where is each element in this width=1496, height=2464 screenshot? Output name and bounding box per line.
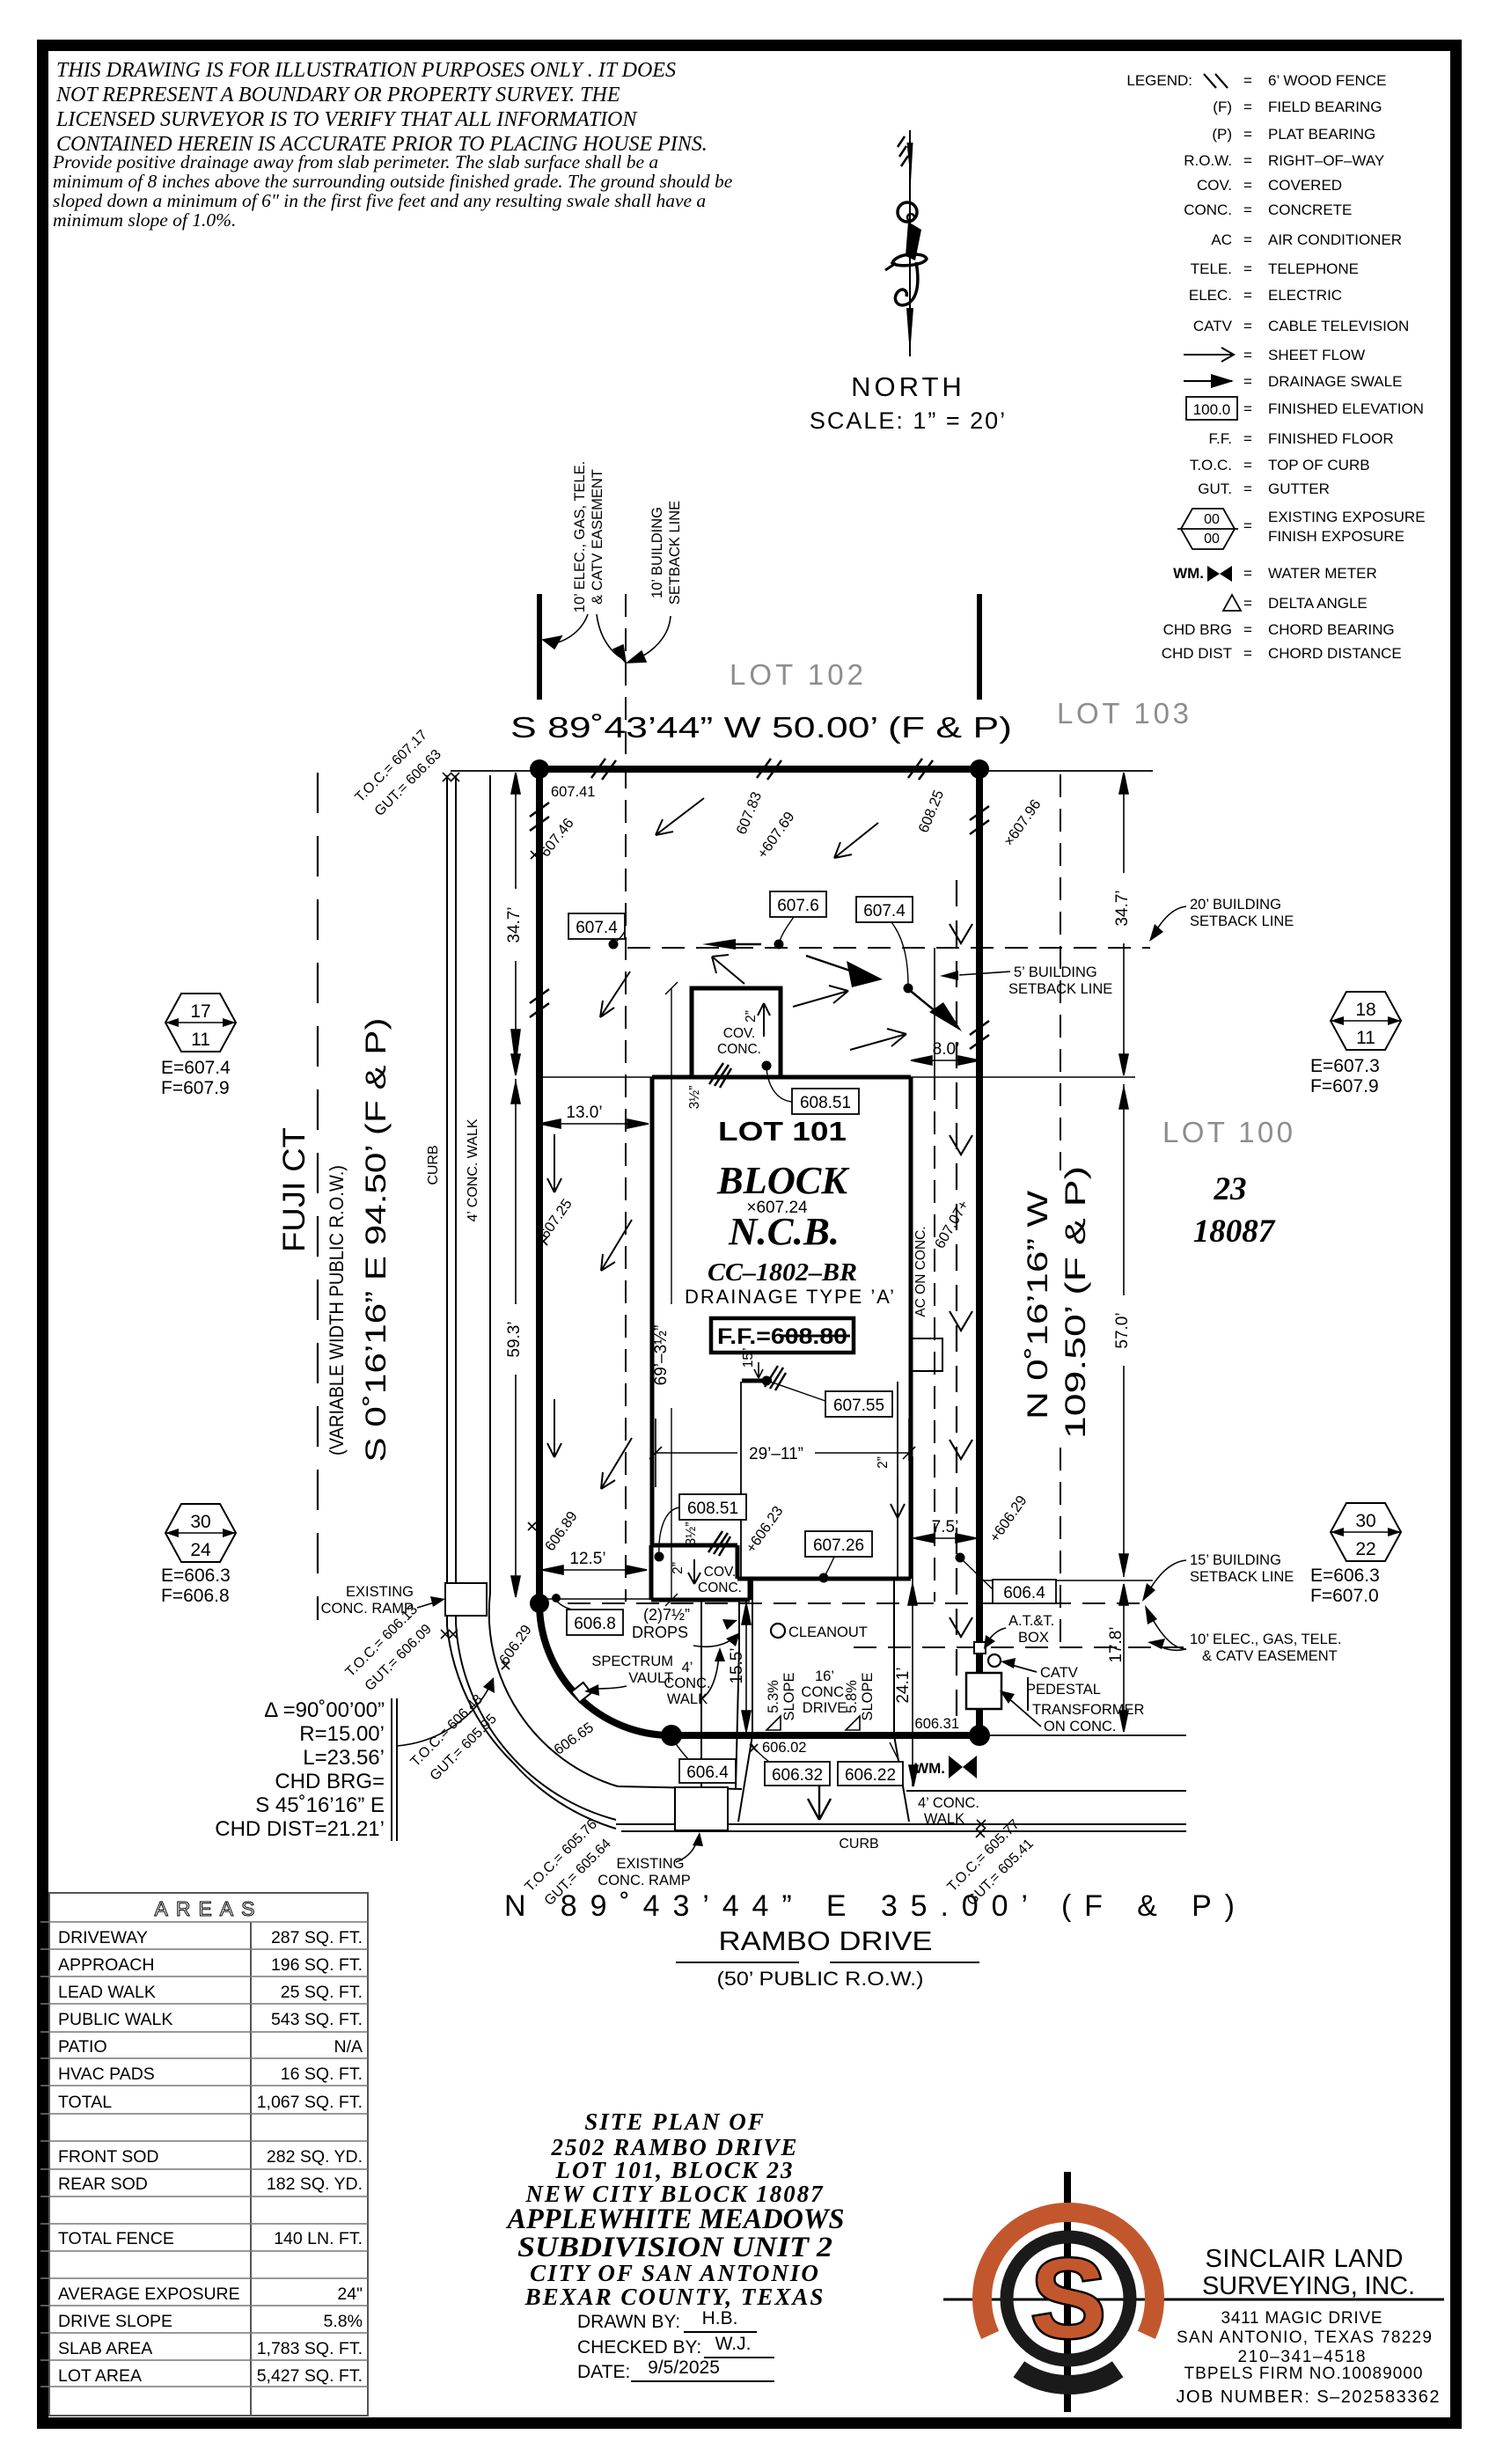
svg-text:18087: 18087 [1193, 1214, 1276, 1250]
svg-text:PATIO: PATIO [58, 2037, 107, 2057]
svg-text:CONC.: CONC. [1184, 202, 1232, 218]
svg-text:4’: 4’ [682, 1660, 693, 1676]
svg-text:PUBLIC WALK: PUBLIC WALK [58, 2010, 172, 2029]
svg-text:AVERAGE EXPOSURE: AVERAGE EXPOSURE [58, 2284, 240, 2304]
svg-text:FINISHED FLOOR: FINISHED FLOOR [1268, 430, 1394, 447]
svg-text:4’ CONC. WALK: 4’ CONC. WALK [466, 1118, 480, 1221]
svg-text:CHD DIST: CHD DIST [1162, 645, 1232, 662]
svg-text:CC–1802–BR: CC–1802–BR [708, 1259, 857, 1287]
svg-text:SETBACK LINE: SETBACK LINE [1008, 981, 1112, 997]
svg-text:00: 00 [1204, 532, 1220, 546]
svg-text:3411 MAGIC DRIVE: 3411 MAGIC DRIVE [1221, 2309, 1382, 2328]
svg-text:=: = [1243, 347, 1252, 363]
svg-text:CITY OF SAN ANTONIO: CITY OF SAN ANTONIO [530, 2260, 820, 2286]
svg-text:607.6: 607.6 [777, 897, 819, 915]
svg-text:SLAB AREA: SLAB AREA [58, 2339, 152, 2358]
svg-text:69’–3½”: 69’–3½” [652, 1325, 671, 1386]
svg-text:FINISHED ELEVATION: FINISHED ELEVATION [1268, 400, 1424, 417]
svg-text:DRIVEWAY: DRIVEWAY [58, 1928, 148, 1947]
svg-text:00: 00 [1204, 512, 1220, 527]
svg-text:=: = [1243, 318, 1252, 334]
svg-text:10’ ELEC., GAS, TELE.: 10’ ELEC., GAS, TELE. [572, 461, 588, 612]
svg-text:5’ BUILDING: 5’ BUILDING [1014, 964, 1097, 980]
svg-text:25 SQ. FT.: 25 SQ. FT. [281, 1983, 363, 2002]
svg-text:Provide positive drainage away: Provide positive drainage away from slab… [52, 151, 658, 172]
svg-text:8.0’: 8.0’ [933, 1040, 960, 1059]
svg-text:606.02: 606.02 [762, 1740, 806, 1756]
svg-text:23: 23 [1214, 1171, 1247, 1207]
svg-text:COV.: COV. [723, 1026, 755, 1041]
svg-text:SITE PLAN OF: SITE PLAN OF [584, 2108, 766, 2135]
svg-text:30: 30 [190, 1512, 210, 1532]
svg-text:15”: 15” [741, 1348, 756, 1368]
svg-text:E=607.3: E=607.3 [1310, 1056, 1380, 1076]
svg-text:FINISH EXPOSURE: FINISH EXPOSURE [1268, 528, 1404, 545]
svg-text:210–341–4518: 210–341–4518 [1238, 2348, 1366, 2366]
svg-text:=: = [1243, 645, 1252, 662]
svg-text:607.26: 607.26 [813, 1536, 864, 1555]
svg-text:=: = [1243, 430, 1252, 447]
svg-text:WALK: WALK [667, 1691, 708, 1707]
svg-text:=: = [1243, 202, 1252, 218]
svg-text:CHD BRG=: CHD BRG= [275, 1770, 385, 1793]
svg-text:LOT 102: LOT 102 [730, 658, 863, 691]
svg-text:CONC. RAMP: CONC. RAMP [598, 1873, 690, 1888]
svg-text:DRIVE SLOPE: DRIVE SLOPE [58, 2312, 172, 2331]
svg-text:2”: 2” [744, 1010, 759, 1023]
svg-text:543 SQ. FT.: 543 SQ. FT. [271, 2010, 363, 2029]
svg-text:minimum of 8 inches above the: minimum of 8 inches above the surroundin… [53, 171, 733, 192]
svg-text:=: = [1243, 231, 1252, 248]
svg-text:TOTAL FENCE: TOTAL FENCE [58, 2229, 174, 2248]
svg-text:607.41: 607.41 [551, 784, 595, 800]
svg-text:TRANSFORMER: TRANSFORMER [1032, 1702, 1145, 1718]
svg-text:5.3%: 5.3% [766, 1680, 781, 1713]
svg-text:F=606.8: F=606.8 [161, 1586, 230, 1606]
svg-text:APPLEWHITE MEADOWS: APPLEWHITE MEADOWS [506, 2204, 845, 2235]
svg-text:10’ BUILDING: 10’ BUILDING [649, 507, 665, 598]
svg-text:=: = [1243, 480, 1252, 497]
svg-text:SETBACK LINE: SETBACK LINE [667, 501, 683, 605]
svg-text:34.7’: 34.7’ [505, 906, 524, 942]
svg-text:CONC. RAMP: CONC. RAMP [321, 1601, 414, 1617]
svg-text:(F): (F) [1213, 99, 1232, 115]
svg-text:607.4: 607.4 [863, 902, 906, 920]
svg-text:& CATV EASEMENT: & CATV EASEMENT [1202, 1648, 1338, 1664]
svg-text:=: = [1243, 177, 1252, 194]
svg-text:RIGHT–OF–WAY: RIGHT–OF–WAY [1268, 152, 1384, 169]
svg-text:NOT REPRESENT A BOUNDARY OR PR: NOT REPRESENT A BOUNDARY OR PROPERTY SUR… [55, 84, 620, 106]
svg-text:11: 11 [1356, 1028, 1375, 1048]
svg-text:EXISTING: EXISTING [346, 1584, 414, 1600]
svg-text:H.B.: H.B. [702, 2308, 738, 2328]
svg-text:=: = [1243, 72, 1252, 89]
svg-text:GUTTER: GUTTER [1268, 480, 1330, 497]
svg-text:24.1’: 24.1’ [894, 1667, 913, 1703]
svg-text:(VARIABLE WIDTH PUBLIC R.O.W.): (VARIABLE WIDTH PUBLIC R.O.W.) [326, 1165, 348, 1456]
svg-text:CATV: CATV [1193, 318, 1233, 334]
svg-text:NORTH: NORTH [851, 371, 965, 402]
svg-text:DRAINAGE TYPE ’A’: DRAINAGE TYPE ’A’ [685, 1286, 894, 1308]
svg-text:SAN ANTONIO, TEXAS 78229: SAN ANTONIO, TEXAS 78229 [1177, 2328, 1432, 2347]
svg-text:=: = [1243, 152, 1252, 169]
svg-text:SINCLAIR LAND: SINCLAIR LAND [1206, 2245, 1404, 2273]
svg-text:TELEPHONE: TELEPHONE [1268, 260, 1359, 277]
svg-text:DROPS: DROPS [632, 1624, 688, 1641]
svg-text:GUT.: GUT. [1198, 480, 1232, 497]
svg-text:SPECTRUM: SPECTRUM [591, 1654, 673, 1669]
svg-text:E=607.4: E=607.4 [161, 1058, 231, 1078]
svg-text:E=606.3: E=606.3 [1310, 1566, 1380, 1586]
svg-text:AIR CONDITIONER: AIR CONDITIONER [1268, 231, 1402, 248]
svg-text:CABLE TELEVISION: CABLE TELEVISION [1268, 318, 1409, 334]
svg-text:T.O.C.: T.O.C. [1190, 457, 1232, 473]
svg-text:AC: AC [1211, 231, 1232, 248]
svg-text:F=607.9: F=607.9 [1310, 1076, 1379, 1096]
svg-text:S: S [1030, 2236, 1105, 2362]
svg-text:15’ BUILDING: 15’ BUILDING [1190, 1552, 1281, 1568]
svg-text:CONC.: CONC. [717, 1042, 761, 1057]
svg-text:15.5’: 15.5’ [728, 1647, 746, 1683]
svg-text:CONCRETE: CONCRETE [1268, 202, 1352, 218]
svg-text:=: = [1243, 517, 1252, 534]
svg-text:TOP OF CURB: TOP OF CURB [1268, 457, 1370, 473]
svg-text:CHORD BEARING: CHORD BEARING [1268, 621, 1395, 638]
svg-text:SCALE: 1” = 20’: SCALE: 1” = 20’ [810, 407, 1007, 434]
svg-text:ELECTRIC: ELECTRIC [1268, 287, 1342, 304]
svg-text:7.5’: 7.5’ [932, 1518, 959, 1536]
svg-text:PLAT BEARING: PLAT BEARING [1268, 126, 1375, 143]
svg-text:3½”: 3½” [684, 1522, 699, 1546]
svg-text:N.C.B.: N.C.B. [728, 1210, 840, 1253]
svg-text:SLOPE: SLOPE [860, 1672, 876, 1720]
svg-text:APPROACH: APPROACH [58, 1955, 154, 1975]
svg-text:=: = [1243, 400, 1252, 417]
svg-text:DRIVE: DRIVE [803, 1700, 847, 1716]
svg-text:109.50’ (F & P): 109.50’ (F & P) [1060, 1166, 1091, 1439]
svg-text:BLOCK: BLOCK [716, 1159, 850, 1202]
svg-text:N/A: N/A [334, 2037, 363, 2057]
svg-text:CURB: CURB [839, 1837, 878, 1852]
svg-text:LEAD WALK: LEAD WALK [58, 1983, 156, 2002]
svg-text:WM.: WM. [914, 1760, 945, 1777]
svg-text:DELTA ANGLE: DELTA ANGLE [1268, 595, 1368, 612]
svg-text:F=607.0: F=607.0 [1310, 1586, 1379, 1606]
svg-text:59.3’: 59.3’ [505, 1321, 524, 1357]
svg-text:(P): (P) [1212, 126, 1232, 143]
svg-text:CURB: CURB [426, 1145, 441, 1184]
svg-text:608.51: 608.51 [800, 1094, 851, 1112]
svg-text:9/5/2025: 9/5/2025 [648, 2358, 720, 2378]
svg-text:BEXAR COUNTY, TEXAS: BEXAR COUNTY, TEXAS [524, 2284, 825, 2310]
svg-text:TELE.: TELE. [1191, 260, 1232, 277]
svg-text:=: = [1243, 595, 1252, 612]
svg-text:22: 22 [1355, 1539, 1375, 1559]
svg-text:=: = [1243, 126, 1252, 143]
svg-text:1,783 SQ. FT.: 1,783 SQ. FT. [257, 2339, 363, 2358]
svg-text:ON CONC.: ON CONC. [1044, 1719, 1117, 1734]
svg-text:F=607.9: F=607.9 [161, 1078, 230, 1098]
svg-text:18: 18 [1355, 1000, 1375, 1020]
svg-text:CONC.: CONC. [801, 1684, 847, 1700]
svg-text:WATER METER: WATER METER [1268, 565, 1377, 582]
svg-text:608.51: 608.51 [687, 1500, 738, 1518]
svg-text:SETBACK LINE: SETBACK LINE [1190, 913, 1294, 929]
svg-text:sloped down a minimum of 6" in: sloped down a minimum of 6" in the first… [53, 190, 706, 211]
svg-text:24: 24 [190, 1540, 211, 1560]
svg-text:3½”: 3½” [687, 1086, 702, 1110]
svg-text:282 SQ. YD.: 282 SQ. YD. [267, 2147, 363, 2167]
svg-text:F.F.: F.F. [1209, 430, 1232, 447]
svg-text:SURVEYING, INC.: SURVEYING, INC. [1202, 2272, 1415, 2300]
svg-text:607.4: 607.4 [576, 919, 618, 937]
svg-text:SHEET FLOW: SHEET FLOW [1268, 347, 1365, 363]
svg-text:606.32: 606.32 [772, 1766, 823, 1785]
svg-text:34.7’: 34.7’ [1113, 890, 1132, 926]
svg-text:EXISTING EXPOSURE: EXISTING EXPOSURE [1268, 509, 1426, 525]
svg-text:TBPELS FIRM NO.10089000: TBPELS FIRM NO.10089000 [1184, 2365, 1423, 2383]
svg-text:DRAWN BY:: DRAWN BY: [577, 2312, 680, 2332]
svg-text:minimum slope of 1.0%.: minimum slope of 1.0%. [53, 209, 236, 231]
svg-text:=: = [1243, 373, 1252, 390]
svg-text:WM.: WM. [1173, 565, 1204, 582]
svg-text:N 0˚16’16” W: N 0˚16’16” W [1022, 1190, 1053, 1419]
svg-text:1,067 SQ. FT.: 1,067 SQ. FT. [257, 2093, 363, 2112]
svg-text:S 89˚43’44” W 50.00’ (F & P): S 89˚43’44” W 50.00’ (F & P) [510, 711, 1012, 744]
svg-text:13.0’: 13.0’ [566, 1104, 602, 1122]
svg-text:2”: 2” [671, 1562, 686, 1574]
svg-text:COV.: COV. [1197, 177, 1232, 194]
svg-text:LOT 103: LOT 103 [1057, 697, 1189, 730]
svg-text:=: = [1243, 565, 1252, 582]
svg-text:606.8: 606.8 [574, 1615, 616, 1633]
svg-text:606.22: 606.22 [845, 1766, 896, 1785]
svg-text:182 SQ. YD.: 182 SQ. YD. [267, 2174, 363, 2194]
svg-text:10’ ELEC., GAS, TELE.: 10’ ELEC., GAS, TELE. [1190, 1632, 1341, 1647]
svg-text:AC ON CONC.: AC ON CONC. [913, 1226, 928, 1316]
svg-text:PEDESTAL: PEDESTAL [1026, 1682, 1101, 1698]
svg-text:AREAS: AREAS [155, 1897, 263, 1920]
svg-text:20’ BUILDING: 20’ BUILDING [1190, 897, 1281, 913]
svg-text:Δ =90˚00’00”: Δ =90˚00’00” [264, 1698, 385, 1722]
svg-text:FRONT SOD: FRONT SOD [58, 2147, 158, 2167]
svg-text:16’: 16’ [815, 1668, 834, 1684]
svg-text:196 SQ. FT.: 196 SQ. FT. [271, 1955, 363, 1975]
svg-text:A.T.&T.: A.T.&T. [1008, 1613, 1054, 1629]
svg-text:L=23.56’: L=23.56’ [303, 1746, 385, 1770]
svg-text:S 0˚16’16” E 94.50’ (F & P): S 0˚16’16” E 94.50’ (F & P) [360, 1018, 392, 1463]
svg-text:CHD DIST=21.21’: CHD DIST=21.21’ [215, 1817, 385, 1841]
svg-text:COV.: COV. [704, 1565, 736, 1580]
svg-text:COVERED: COVERED [1268, 177, 1342, 194]
svg-text:24": 24" [337, 2284, 363, 2304]
svg-text:4’ CONC.: 4’ CONC. [918, 1795, 979, 1811]
svg-text:606.4: 606.4 [1003, 1584, 1045, 1602]
svg-text:FIELD BEARING: FIELD BEARING [1268, 99, 1382, 115]
svg-text:DATE:: DATE: [577, 2362, 630, 2382]
svg-text:30: 30 [1355, 1511, 1375, 1531]
svg-text:DRAINAGE SWALE: DRAINAGE SWALE [1268, 373, 1402, 390]
svg-text:(2)7½”: (2)7½” [643, 1606, 690, 1624]
svg-text:17: 17 [190, 1001, 210, 1022]
svg-text:CHD BRG: CHD BRG [1163, 621, 1232, 638]
svg-text:=: = [1243, 457, 1252, 473]
svg-text:LICENSED SURVEYOR IS TO VERIFY: LICENSED SURVEYOR IS TO VERIFY THAT ALL … [55, 108, 638, 131]
svg-text:287 SQ. FT.: 287 SQ. FT. [271, 1928, 363, 1947]
svg-text:606.4: 606.4 [686, 1764, 729, 1782]
svg-text:LOT 100: LOT 100 [1162, 1116, 1293, 1148]
svg-text:R=15.00’: R=15.00’ [299, 1722, 385, 1746]
svg-text:=: = [1243, 287, 1252, 304]
svg-text:=: = [1243, 99, 1252, 115]
svg-text:12.5’: 12.5’ [569, 1550, 605, 1568]
svg-text:11: 11 [191, 1030, 210, 1050]
svg-text:607.55: 607.55 [833, 1397, 884, 1415]
svg-text:JOB NUMBER: S–202583362: JOB NUMBER: S–202583362 [1177, 2387, 1440, 2407]
svg-text:TOTAL: TOTAL [58, 2093, 112, 2112]
svg-text:SLOPE: SLOPE [781, 1672, 797, 1720]
svg-text:HVAC PADS: HVAC PADS [58, 2064, 155, 2084]
svg-text:=: = [1243, 621, 1252, 638]
svg-text:CONC.: CONC. [664, 1676, 710, 1691]
svg-text:2”: 2” [876, 1456, 891, 1469]
svg-text:CHORD DISTANCE: CHORD DISTANCE [1268, 645, 1402, 662]
svg-text:RAMBO DRIVE: RAMBO DRIVE [719, 1925, 933, 1956]
svg-text:FUJI CT: FUJI CT [277, 1127, 312, 1252]
svg-text:(50’ PUBLIC R.O.W.): (50’ PUBLIC R.O.W.) [717, 1968, 924, 1990]
svg-text:R.O.W.: R.O.W. [1184, 152, 1232, 169]
svg-text:SUBDIVISION UNIT 2: SUBDIVISION UNIT 2 [517, 2232, 832, 2263]
svg-text:100.0: 100.0 [1193, 401, 1231, 418]
svg-text:=: = [1243, 260, 1252, 277]
svg-text:5,427 SQ. FT.: 5,427 SQ. FT. [257, 2366, 363, 2386]
svg-text:CONC.: CONC. [698, 1580, 742, 1595]
svg-text:W.J.: W.J. [715, 2334, 752, 2354]
svg-text:140 LN. FT.: 140 LN. FT. [274, 2229, 363, 2248]
svg-text:LEGEND:: LEGEND: [1126, 72, 1192, 89]
svg-text:SETBACK LINE: SETBACK LINE [1190, 1569, 1294, 1585]
svg-text:57.0’: 57.0’ [1113, 1312, 1132, 1348]
svg-text:S 45˚16’16” E: S 45˚16’16” E [255, 1793, 385, 1817]
svg-text:E=606.3: E=606.3 [161, 1566, 231, 1586]
svg-text:CHECKED BY:: CHECKED BY: [577, 2337, 701, 2358]
svg-text:WALK: WALK [924, 1811, 964, 1827]
svg-text:LOT 101, BLOCK 23: LOT 101, BLOCK 23 [554, 2157, 794, 2183]
svg-text:17.8’: 17.8’ [1107, 1626, 1126, 1662]
svg-text:ELEC.: ELEC. [1189, 287, 1232, 304]
svg-text:CATV: CATV [1040, 1665, 1078, 1681]
svg-text:6’ WOOD FENCE: 6’ WOOD FENCE [1268, 72, 1386, 89]
svg-text:EXISTING: EXISTING [616, 1856, 684, 1872]
svg-text:29’–11”: 29’–11” [749, 1445, 803, 1463]
svg-text:THIS DRAWING IS FOR ILLUSTRATI: THIS DRAWING IS FOR ILLUSTRATION PURPOSE… [56, 59, 676, 82]
svg-text:& CATV EASEMENT: & CATV EASEMENT [590, 469, 605, 605]
svg-text:606.31: 606.31 [915, 1716, 959, 1732]
svg-text:REAR SOD: REAR SOD [58, 2174, 148, 2194]
svg-text:CLEANOUT: CLEANOUT [788, 1624, 868, 1640]
svg-text:LOT 101: LOT 101 [718, 1116, 847, 1147]
svg-text:BOX: BOX [1018, 1630, 1049, 1646]
svg-text:16 SQ. FT.: 16 SQ. FT. [281, 2064, 363, 2084]
svg-text:LOT AREA: LOT AREA [58, 2366, 142, 2386]
svg-text:5.8%: 5.8% [324, 2312, 363, 2331]
